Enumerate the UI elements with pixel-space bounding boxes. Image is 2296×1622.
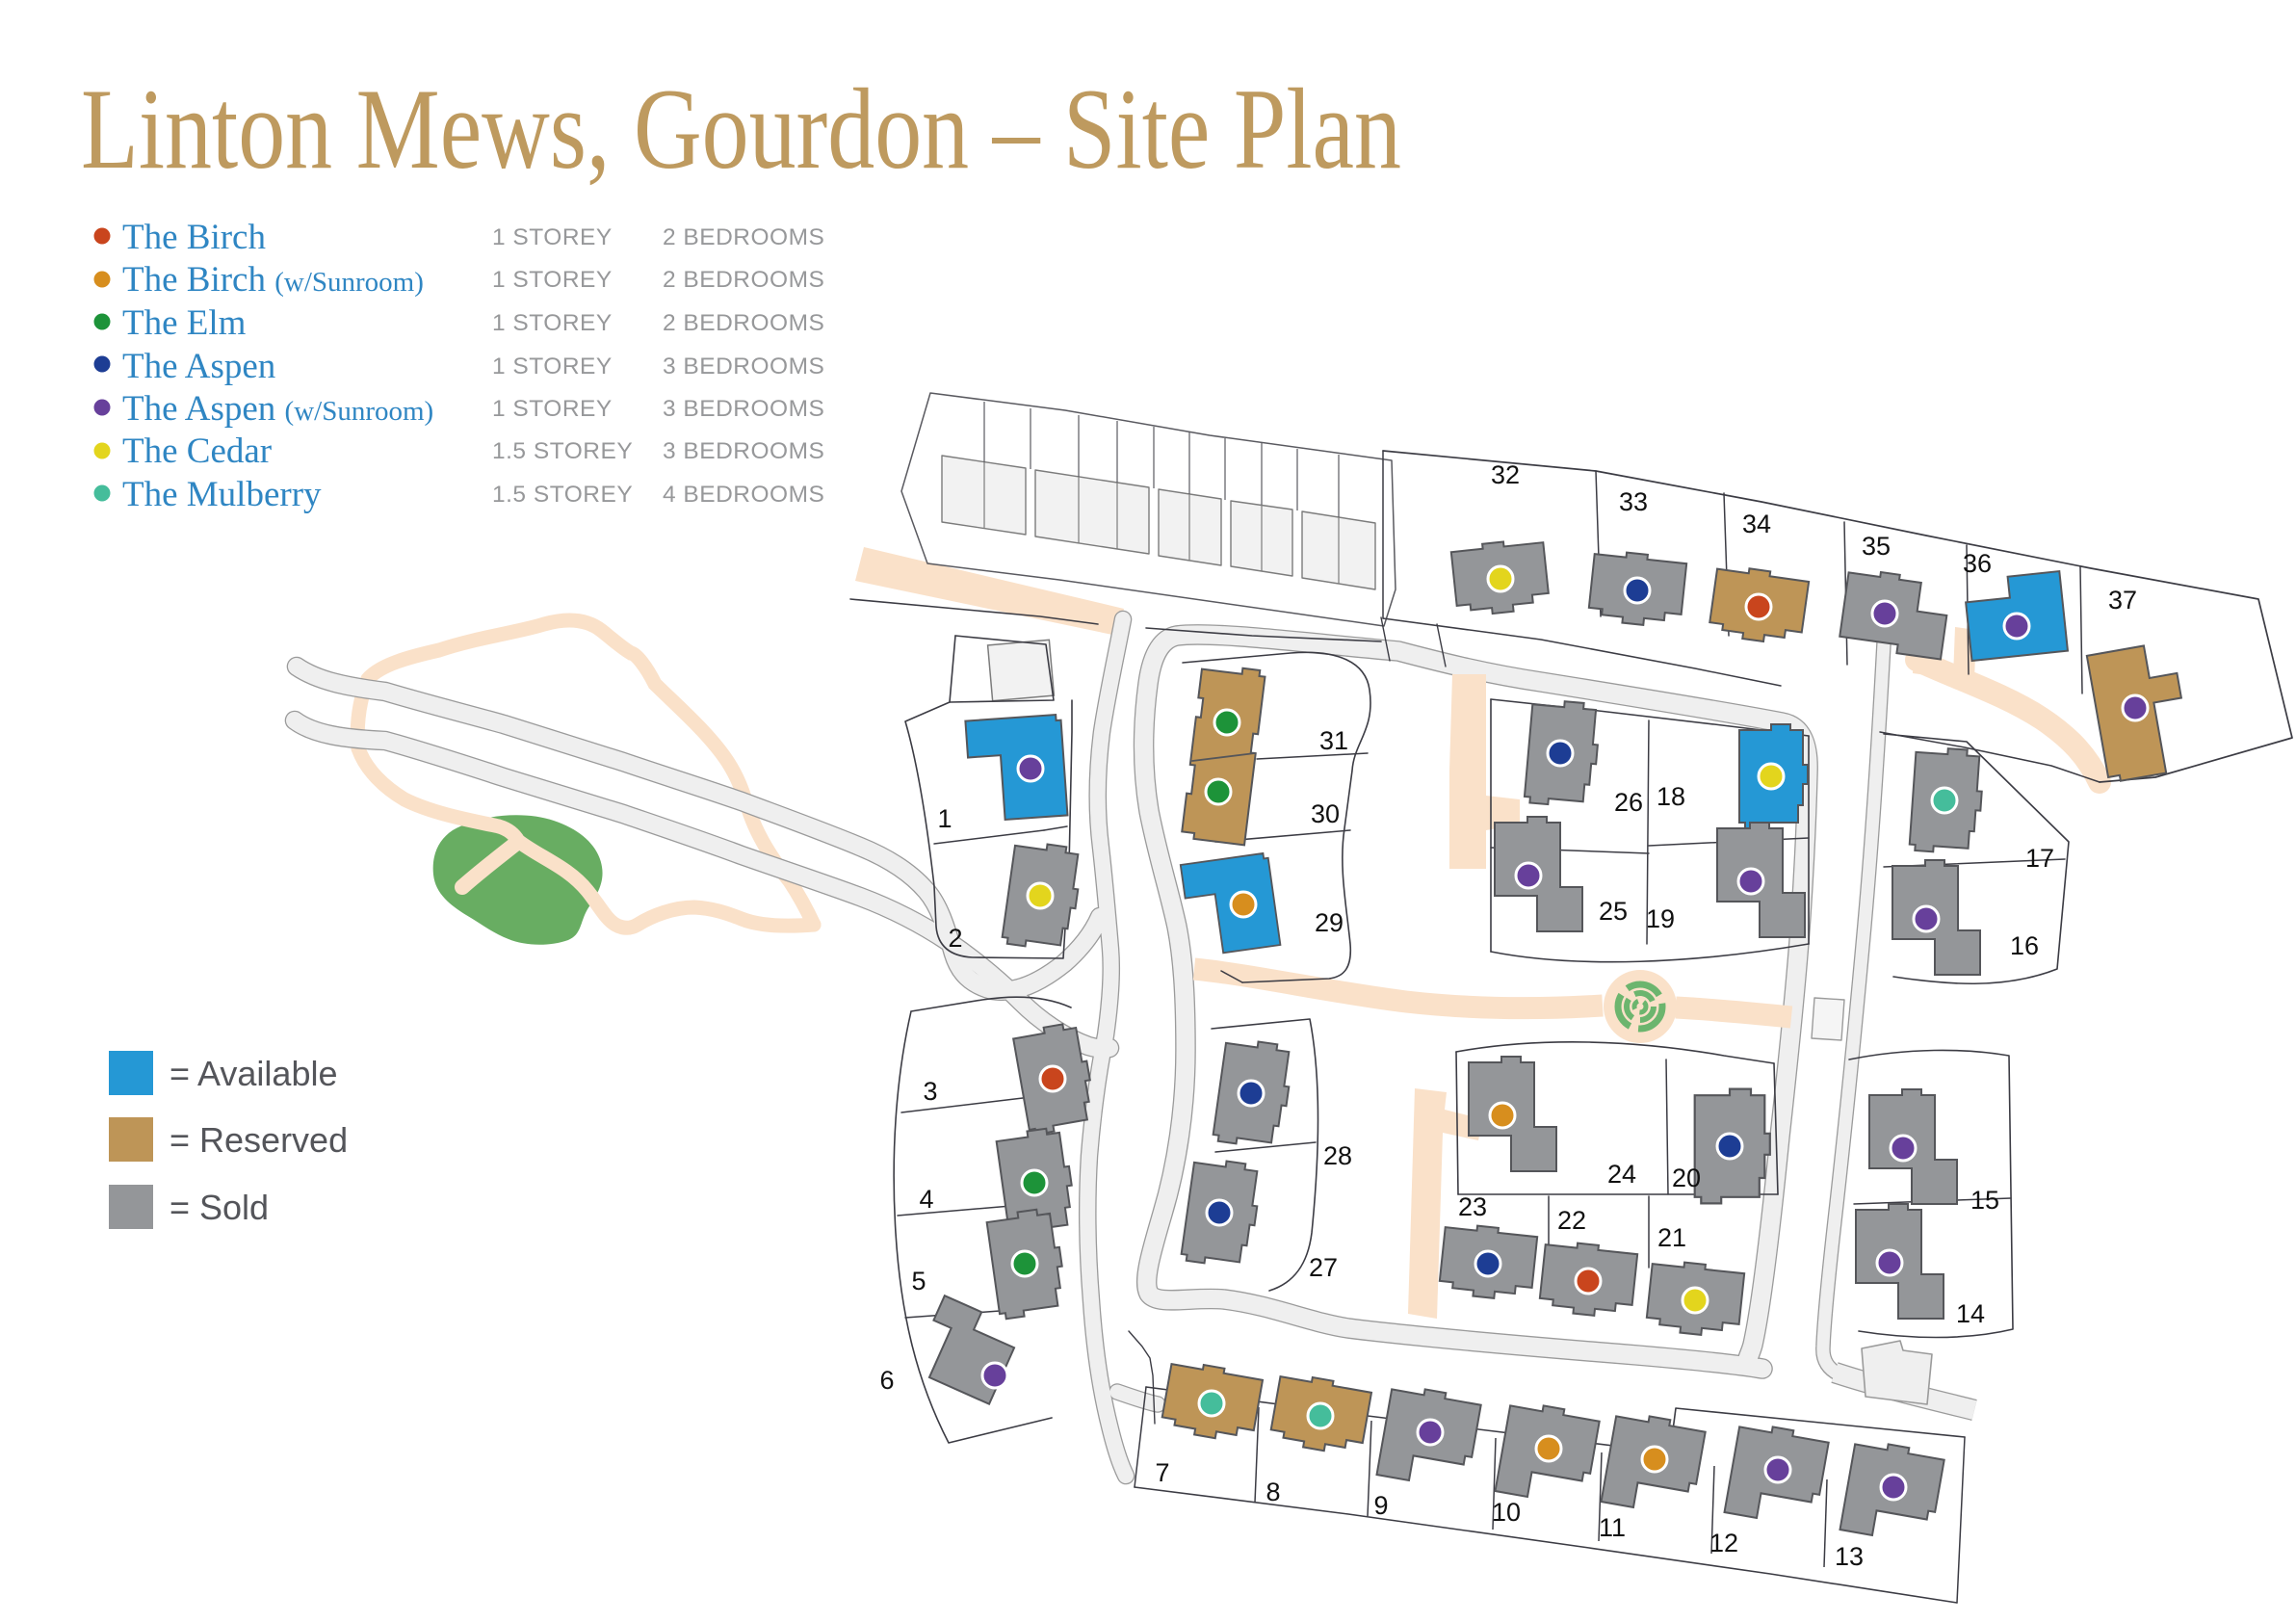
svg-text:= Reserved: = Reserved xyxy=(170,1120,348,1160)
svg-text:23: 23 xyxy=(1458,1192,1487,1221)
svg-text:7: 7 xyxy=(1155,1458,1169,1487)
svg-text:The Elm: The Elm xyxy=(122,303,247,343)
svg-text:2 BEDROOMS: 2 BEDROOMS xyxy=(663,224,824,250)
svg-text:15: 15 xyxy=(1970,1186,1999,1215)
svg-text:34: 34 xyxy=(1742,510,1771,538)
svg-text:18: 18 xyxy=(1657,782,1685,811)
svg-text:10: 10 xyxy=(1492,1498,1521,1527)
svg-text:The Cedar: The Cedar xyxy=(122,432,272,471)
svg-text:9: 9 xyxy=(1373,1491,1388,1520)
svg-text:4 BEDROOMS: 4 BEDROOMS xyxy=(663,482,824,508)
svg-text:13: 13 xyxy=(1835,1542,1864,1571)
svg-text:1 STOREY: 1 STOREY xyxy=(492,396,613,422)
svg-text:6: 6 xyxy=(879,1366,894,1395)
svg-text:31: 31 xyxy=(1319,726,1348,755)
svg-text:3: 3 xyxy=(923,1077,937,1106)
svg-text:32: 32 xyxy=(1491,460,1520,489)
svg-text:Linton Mews, Gourdon – Site Pl: Linton Mews, Gourdon – Site Plan xyxy=(81,65,1401,193)
svg-text:3 BEDROOMS: 3 BEDROOMS xyxy=(663,396,824,422)
svg-text:26: 26 xyxy=(1614,788,1643,817)
svg-text:2: 2 xyxy=(948,924,962,953)
svg-text:12: 12 xyxy=(1709,1529,1738,1557)
svg-text:= Sold: = Sold xyxy=(170,1188,269,1227)
svg-text:8: 8 xyxy=(1265,1478,1280,1506)
svg-text:33: 33 xyxy=(1619,487,1648,516)
svg-text:30: 30 xyxy=(1311,799,1340,828)
svg-text:35: 35 xyxy=(1862,532,1891,561)
svg-text:21: 21 xyxy=(1657,1223,1686,1252)
svg-text:2 BEDROOMS: 2 BEDROOMS xyxy=(663,310,824,336)
svg-text:14: 14 xyxy=(1956,1299,1985,1328)
svg-text:1.5 STOREY: 1.5 STOREY xyxy=(492,482,633,508)
svg-text:36: 36 xyxy=(1963,549,1992,578)
svg-text:24: 24 xyxy=(1607,1160,1636,1189)
svg-text:37: 37 xyxy=(2108,586,2137,615)
svg-text:16: 16 xyxy=(2010,931,2039,960)
svg-text:3 BEDROOMS: 3 BEDROOMS xyxy=(663,353,824,379)
svg-text:25: 25 xyxy=(1599,897,1628,926)
svg-text:The Birch: The Birch xyxy=(122,218,266,257)
svg-text:1: 1 xyxy=(937,804,952,833)
svg-text:1.5 STOREY: 1.5 STOREY xyxy=(492,438,633,464)
svg-text:The Mulberry: The Mulberry xyxy=(122,475,322,514)
svg-text:1 STOREY: 1 STOREY xyxy=(492,353,613,379)
svg-text:1 STOREY: 1 STOREY xyxy=(492,310,613,336)
svg-text:1 STOREY: 1 STOREY xyxy=(492,224,613,250)
svg-text:3 BEDROOMS: 3 BEDROOMS xyxy=(663,438,824,464)
svg-text:5: 5 xyxy=(911,1267,926,1295)
svg-text:29: 29 xyxy=(1315,908,1344,937)
svg-text:2 BEDROOMS: 2 BEDROOMS xyxy=(663,267,824,293)
svg-text:22: 22 xyxy=(1557,1206,1586,1235)
svg-text:19: 19 xyxy=(1646,904,1675,933)
svg-text:4: 4 xyxy=(919,1185,933,1214)
svg-text:1 STOREY: 1 STOREY xyxy=(492,267,613,293)
svg-text:The Birch (w/Sunroom): The Birch (w/Sunroom) xyxy=(122,260,424,300)
svg-text:17: 17 xyxy=(2025,844,2054,873)
svg-text:28: 28 xyxy=(1323,1141,1352,1170)
svg-text:20: 20 xyxy=(1672,1164,1701,1192)
svg-text:The Aspen (w/Sunroom): The Aspen (w/Sunroom) xyxy=(122,389,433,429)
svg-text:11: 11 xyxy=(1599,1513,1626,1542)
svg-text:= Available: = Available xyxy=(170,1054,337,1093)
svg-text:27: 27 xyxy=(1309,1253,1338,1282)
svg-text:The Aspen: The Aspen xyxy=(122,347,275,386)
